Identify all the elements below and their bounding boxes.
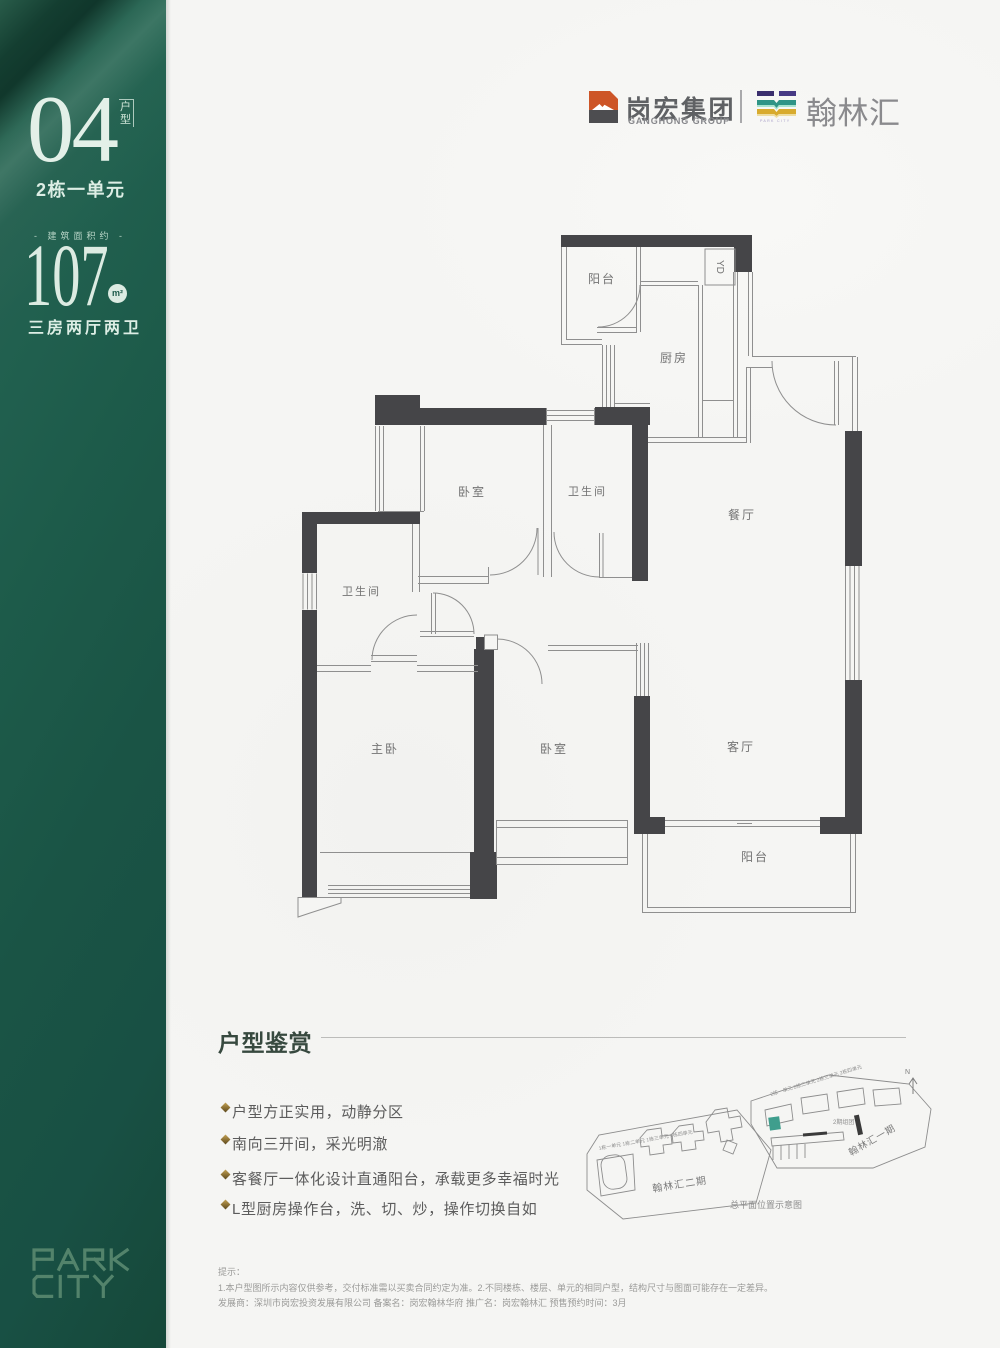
svg-text:N: N (905, 1069, 910, 1076)
svg-text:阳台: 阳台 (588, 271, 616, 286)
svg-text:PARK CITY: PARK CITY (760, 119, 790, 123)
svg-text:厨房: 厨房 (660, 350, 688, 365)
svg-text:卫生间: 卫生间 (342, 584, 381, 598)
svg-text:翰林汇二期: 翰林汇二期 (651, 1174, 707, 1195)
svg-text:卧室: 卧室 (458, 484, 486, 499)
svg-text:餐厅: 餐厅 (728, 507, 756, 522)
svg-text:2期组团: 2期组团 (833, 1118, 854, 1126)
svg-text:客厅: 客厅 (727, 739, 755, 754)
svg-text:主卧: 主卧 (371, 742, 399, 756)
svg-text:2栋一单元 2栋二单元 2栋三单元 2栋四单元: 2栋一单元 2栋二单元 2栋三单元 2栋四单元 (770, 1063, 863, 1098)
svg-text:翰林汇一期: 翰林汇一期 (847, 1122, 898, 1159)
svg-text:阳台: 阳台 (741, 849, 769, 864)
svg-text:YD: YD (714, 260, 725, 274)
svg-text:卫生间: 卫生间 (568, 484, 607, 498)
svg-text:总平面位置示意图: 总平面位置示意图 (730, 1199, 802, 1210)
svg-text:卧室: 卧室 (540, 741, 568, 756)
